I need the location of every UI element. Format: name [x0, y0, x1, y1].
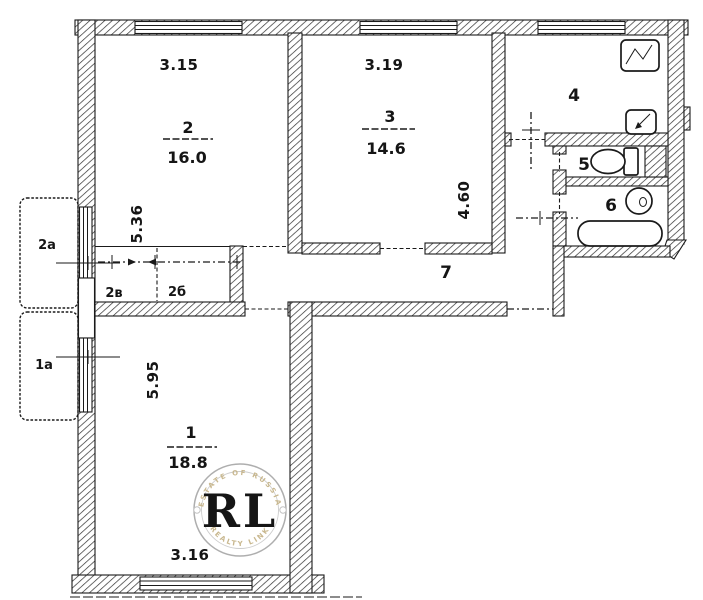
balcony-door-pier [79, 278, 95, 338]
room3-area: 14.6 [366, 139, 405, 158]
dimension-line [98, 255, 240, 269]
washbasin-icon [626, 188, 652, 214]
room3-number: 3 [384, 107, 395, 126]
stove-icon [621, 40, 659, 71]
room6-number: 6 [605, 196, 617, 216]
window-balcony-top [80, 207, 93, 278]
room2-depth-dim: 5.36 [128, 204, 146, 243]
bathtub-icon [578, 221, 662, 246]
window-kitchen [538, 22, 625, 34]
floorplan-canvas: 3.15 3.19 2 16.0 3 14.6 4 5 6 7 1 18.8 3… [0, 0, 703, 600]
room1-number: 1 [185, 423, 196, 442]
window-room3 [360, 22, 457, 34]
room4-number: 4 [568, 86, 580, 106]
watermark-initials: RL [202, 484, 279, 538]
room2-number: 2 [182, 118, 193, 137]
balcony-top-label: 2а [38, 238, 56, 253]
room1-width-dim: 3.16 [170, 546, 209, 564]
floorplan-page: 3.15 3.19 2 16.0 3 14.6 4 5 6 7 1 18.8 3… [0, 0, 703, 600]
room1-area: 18.8 [168, 453, 207, 472]
room1-depth-dim: 5.95 [144, 360, 162, 399]
toilet-icon [591, 148, 638, 175]
watermark: ESTATE OF RUSSIA REALTY LINK RL [194, 464, 286, 556]
closet-left-label: 2в [105, 286, 122, 301]
corridor-number: 7 [440, 263, 452, 283]
watermark-side-dot-left [194, 507, 200, 513]
window-balcony-bottom [80, 338, 93, 412]
room2-width-dim: 3.15 [159, 56, 198, 74]
balcony-bottom-label: 1а [35, 358, 53, 373]
interior-walls [95, 33, 668, 593]
room3-depth-dim: 4.60 [455, 180, 473, 219]
room2-area: 16.0 [167, 148, 206, 167]
closet-right-label: 2б [168, 285, 186, 300]
watermark-side-dot-right [280, 507, 286, 513]
room3-width-dim: 3.19 [364, 56, 403, 74]
room5-number: 5 [578, 155, 590, 175]
balcony-top-outline [20, 198, 78, 308]
window-room1 [140, 577, 252, 590]
balconies [20, 198, 78, 420]
window-room2 [135, 22, 242, 34]
vent-box-icon [626, 110, 656, 134]
